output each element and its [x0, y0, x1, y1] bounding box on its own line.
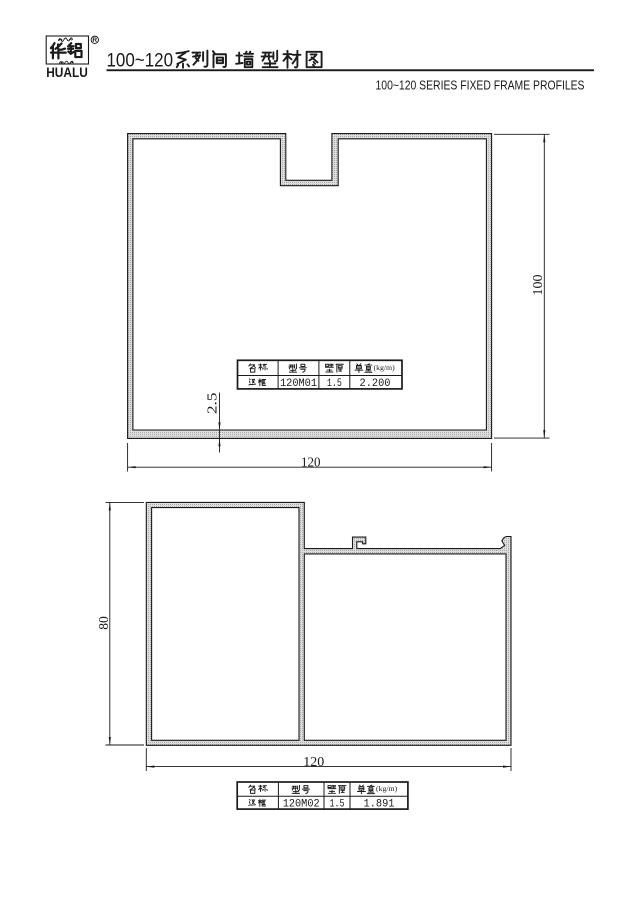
- svg-text:120M02: 120M02: [283, 799, 320, 811]
- svg-text:120: 120: [301, 456, 321, 471]
- svg-text:2.200: 2.200: [360, 378, 391, 390]
- svg-text:1.5: 1.5: [330, 799, 345, 811]
- svg-text:100: 100: [530, 274, 545, 295]
- svg-text:1.5: 1.5: [327, 378, 342, 390]
- svg-text:R: R: [92, 37, 97, 44]
- svg-text:100~120: 100~120: [107, 51, 174, 72]
- svg-text:100~120 SERIES FIXED FRAME PRO: 100~120 SERIES FIXED FRAME PROFILES: [376, 77, 585, 92]
- svg-text:120M01: 120M01: [280, 378, 317, 390]
- svg-text:2.5: 2.5: [204, 392, 219, 414]
- svg-text:80: 80: [96, 616, 111, 630]
- svg-text:(kg/m): (kg/m): [374, 363, 396, 372]
- svg-text:120: 120: [303, 755, 324, 770]
- svg-text:HUALU: HUALU: [46, 64, 88, 80]
- svg-text:1.891: 1.891: [364, 799, 395, 811]
- svg-text:(kg/m): (kg/m): [376, 784, 398, 793]
